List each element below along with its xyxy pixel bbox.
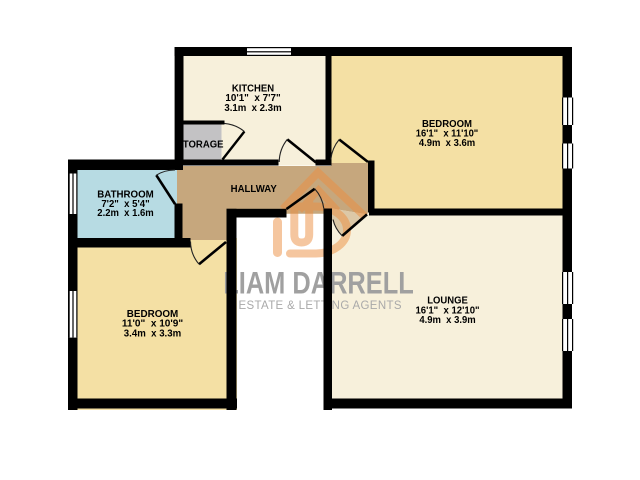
svg-text:ESTATE & LETTING AGENTS: ESTATE & LETTING AGENTS [239,300,402,312]
svg-text:3.4m x 3.3m: 3.4m x 3.3m [124,327,181,339]
svg-text:4.9m x 3.9m: 4.9m x 3.9m [419,314,475,326]
svg-text:STORAGE: STORAGE [177,139,224,151]
svg-text:4.9m x 3.6m: 4.9m x 3.6m [419,137,475,149]
svg-text:LIAM DARRELL: LIAM DARRELL [223,265,414,301]
svg-text:HALLWAY: HALLWAY [231,183,277,195]
svg-text:3.1m x 2.3m: 3.1m x 2.3m [224,102,281,114]
svg-text:2.2m x 1.6m: 2.2m x 1.6m [97,207,153,219]
